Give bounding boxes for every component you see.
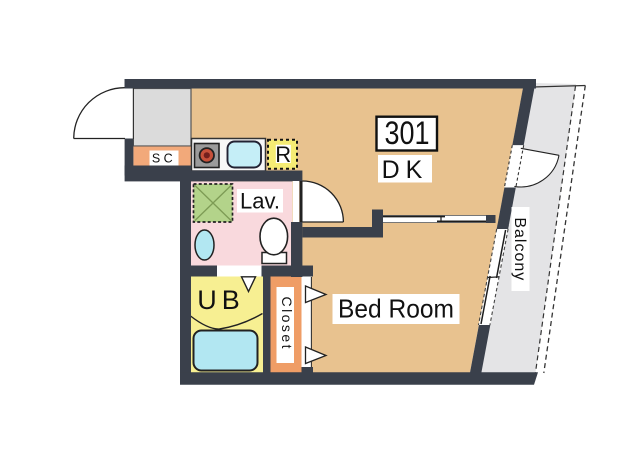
svg-text:R: R [275, 142, 291, 167]
svg-text:Bed Room: Bed Room [338, 294, 454, 324]
svg-text:UB: UB [197, 285, 245, 315]
svg-text:DK: DK [382, 156, 429, 184]
svg-text:SC: SC [152, 152, 176, 166]
svg-text:Lav.: Lav. [240, 189, 280, 214]
svg-text:Balcony: Balcony [511, 217, 528, 281]
svg-text:301: 301 [385, 115, 430, 151]
